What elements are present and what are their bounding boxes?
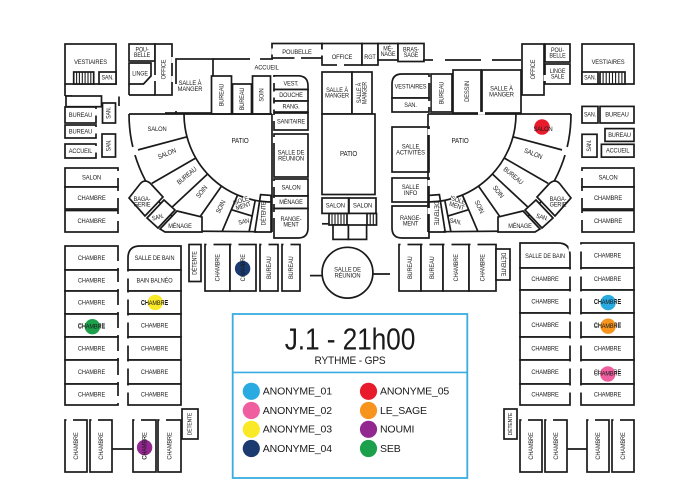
svg-text:SALON: SALON [326,202,346,210]
svg-text:BUREAU: BUREAU [69,128,93,136]
svg-text:BUREAU: BUREAU [218,84,226,107]
svg-text:BELLE: BELLE [549,53,565,59]
svg-text:CHAMBRE: CHAMBRE [77,194,105,202]
svg-text:CHAMBRE: CHAMBRE [531,321,558,329]
svg-text:DOUCHE: DOUCHE [279,92,303,100]
svg-text:CHAMBRE: CHAMBRE [531,275,558,283]
svg-text:MENT: MENT [283,221,299,229]
svg-text:NOUMI: NOUMI [380,424,414,436]
svg-text:ANONYME_05: ANONYME_05 [380,386,449,398]
svg-text:MANGER: MANGER [178,85,203,93]
svg-text:SAN.: SAN. [106,139,112,151]
svg-text:SAN.: SAN. [101,75,114,81]
svg-text:CHAMBRE: CHAMBRE [594,322,621,330]
svg-text:CHAMBRE: CHAMBRE [78,345,105,353]
svg-text:CHAMBRE: CHAMBRE [78,368,105,376]
svg-text:BUREAU: BUREAU [265,256,273,279]
svg-text:SANITAIRE: SANITAIRE [277,118,305,126]
svg-text:SALON: SALON [82,174,102,182]
svg-text:LE_SAGE: LE_SAGE [380,405,427,417]
svg-text:CHAMBRE: CHAMBRE [531,345,558,353]
svg-text:ANONYME_01: ANONYME_01 [263,386,332,398]
svg-text:ACCUEIL: ACCUEIL [69,147,93,155]
svg-text:BELLE: BELLE [134,53,150,59]
svg-text:OFFICE: OFFICE [529,60,537,80]
svg-text:BUREAU: BUREAU [406,256,414,279]
svg-text:CHAMBRE: CHAMBRE [78,299,105,307]
svg-text:CHAMBRE: CHAMBRE [479,254,487,281]
svg-text:CHAMBRE: CHAMBRE [594,391,621,399]
svg-text:SALON: SALON [147,125,167,133]
svg-text:GERIE: GERIE [134,201,151,209]
svg-text:CHAMBRE: CHAMBRE [78,254,105,262]
svg-text:NAGE: NAGE [381,52,396,58]
svg-text:VESTIAIRES: VESTIAIRES [592,58,625,66]
svg-text:SAN.: SAN. [106,107,112,119]
svg-text:CHAMBRE: CHAMBRE [78,391,105,399]
svg-text:BUREAU: BUREAU [69,111,93,119]
svg-text:CHAMBRE: CHAMBRE [594,194,622,202]
svg-text:RGT: RGT [364,53,376,61]
svg-text:SAN.: SAN. [404,101,417,109]
svg-text:OFFICE: OFFICE [160,60,168,80]
svg-text:CHAMBRE: CHAMBRE [141,368,168,376]
svg-text:CHAMBRE: CHAMBRE [594,432,602,459]
svg-text:CHAMBRE: CHAMBRE [594,370,621,378]
svg-text:MENT: MENT [403,220,419,228]
svg-text:BUREAU: BUREAU [605,111,629,119]
svg-text:DÉTENTE: DÉTENTE [260,201,268,225]
svg-text:CHAMBRE: CHAMBRE [78,277,105,285]
svg-text:MANGER: MANGER [325,92,350,100]
svg-text:CHAMBRE: CHAMBRE [527,432,535,459]
svg-text:SAGE: SAGE [404,53,419,59]
svg-text:DÉTENTE: DÉTENTE [432,202,440,226]
svg-text:DÉTENTE: DÉTENTE [191,251,199,275]
svg-text:CHAMBRE: CHAMBRE [72,432,80,459]
svg-text:DÉTENTE: DÉTENTE [499,253,507,277]
svg-text:BUREAU: BUREAU [438,82,446,105]
svg-text:ACCUEIL: ACCUEIL [254,64,279,72]
svg-text:CHAMBRE: CHAMBRE [239,254,247,281]
svg-text:SALLE DE BAIN: SALLE DE BAIN [135,254,175,262]
svg-text:MANGER: MANGER [489,91,514,99]
svg-text:ACTIVITÉS: ACTIVITÉS [396,147,425,157]
svg-text:RÉUNION: RÉUNION [335,270,361,280]
svg-text:CHAMBRE: CHAMBRE [77,218,105,226]
svg-text:CHAMBRE: CHAMBRE [594,218,622,226]
svg-text:SALON: SALON [281,184,301,192]
svg-text:DÉTENTE: DÉTENTE [186,412,194,435]
svg-text:CHAMBRE: CHAMBRE [552,432,560,459]
svg-text:CHAMBRE: CHAMBRE [214,254,222,281]
svg-text:CHAMBRE: CHAMBRE [594,275,621,283]
svg-text:SALLE DE BAIN: SALLE DE BAIN [525,252,565,260]
svg-text:CHAMBRE: CHAMBRE [594,252,621,260]
svg-text:INFO: INFO [404,189,418,197]
svg-text:CHAMBRE: CHAMBRE [594,345,621,353]
svg-text:POUBELLE: POUBELLE [282,48,312,56]
svg-text:BUREAU: BUREAU [608,131,631,139]
svg-text:CHAMBRE: CHAMBRE [141,391,168,399]
svg-text:GERIE: GERIE [550,201,567,209]
svg-text:CHAMBRE: CHAMBRE [531,368,558,376]
svg-text:RANG.: RANG. [282,103,300,111]
svg-text:MÉNAGE: MÉNAGE [168,222,192,230]
svg-text:BAIN BALNÉO: BAIN BALNÉO [136,277,172,285]
svg-text:CHAMBRE: CHAMBRE [141,322,168,330]
svg-text:SALE: SALE [551,74,565,80]
svg-text:CHAMBRE: CHAMBRE [619,432,627,459]
svg-text:SALON: SALON [533,125,553,133]
svg-text:OFFICE: OFFICE [332,53,352,61]
svg-text:CHAMBRE: CHAMBRE [78,323,105,331]
svg-text:PATIO: PATIO [231,138,248,146]
svg-text:BUREAU: BUREAU [428,256,436,279]
svg-text:ACCUEIL: ACCUEIL [606,147,630,155]
svg-text:SAN.: SAN. [584,75,596,81]
svg-text:SOIN: SOIN [258,88,266,101]
svg-text:CHAMBRE: CHAMBRE [531,298,558,306]
svg-text:VESTIAIRES: VESTIAIRES [395,83,427,91]
svg-text:DESSIN: DESSIN [463,81,471,102]
svg-text:VEST.: VEST. [284,80,299,88]
svg-text:BUREAU: BUREAU [238,88,246,111]
svg-text:SEB: SEB [380,443,401,455]
svg-text:CHAMBRE: CHAMBRE [141,299,168,307]
svg-text:CHAMBRE: CHAMBRE [141,432,149,459]
svg-text:VESTIAIRES: VESTIAIRES [74,58,107,66]
svg-text:PATIO: PATIO [451,138,468,146]
svg-text:MÉNAGE: MÉNAGE [279,199,303,207]
svg-text:CHAMBRE: CHAMBRE [97,432,105,459]
svg-text:J.1 - 21h00: J.1 - 21h00 [285,323,416,357]
svg-text:MÉNAGE: MÉNAGE [508,222,532,230]
svg-text:SAN.: SAN. [584,112,597,118]
svg-text:BUREAU: BUREAU [287,256,295,279]
svg-text:DÉTENTE: DÉTENTE [507,412,515,435]
svg-text:CHAMBRE: CHAMBRE [531,391,558,399]
svg-text:SAN.: SAN. [587,139,593,151]
svg-text:CHAMBRE: CHAMBRE [452,254,460,281]
svg-text:RYTHME - GPS: RYTHME - GPS [315,355,386,367]
svg-text:SALON: SALON [353,202,373,210]
svg-text:RÉUNION: RÉUNION [278,153,304,163]
svg-text:ANONYME_02: ANONYME_02 [263,405,332,417]
svg-text:MANGER: MANGER [362,82,368,104]
svg-text:ANONYME_03: ANONYME_03 [263,424,332,436]
svg-text:CHAMBRE: CHAMBRE [166,432,174,459]
svg-text:LINGE: LINGE [132,71,148,77]
svg-text:SALON: SALON [598,174,618,182]
svg-text:CHAMBRE: CHAMBRE [594,298,621,306]
svg-text:ANONYME_04: ANONYME_04 [263,443,332,455]
svg-text:CHAMBRE: CHAMBRE [141,345,168,353]
svg-text:PATIO: PATIO [340,151,357,159]
